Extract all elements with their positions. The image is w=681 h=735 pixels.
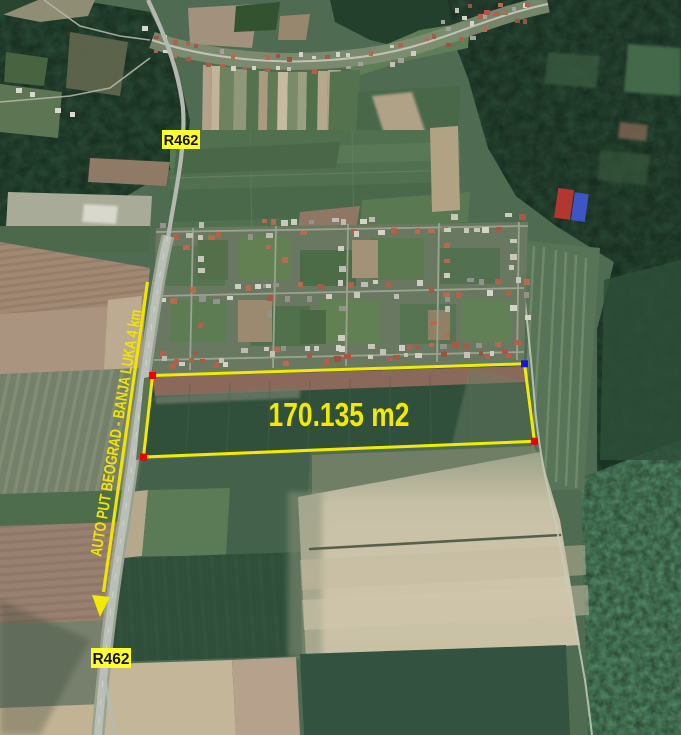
svg-text:R462: R462 — [92, 651, 129, 668]
svg-text:R462: R462 — [164, 133, 199, 149]
svg-text:170.135 m2: 170.135 m2 — [269, 397, 410, 433]
